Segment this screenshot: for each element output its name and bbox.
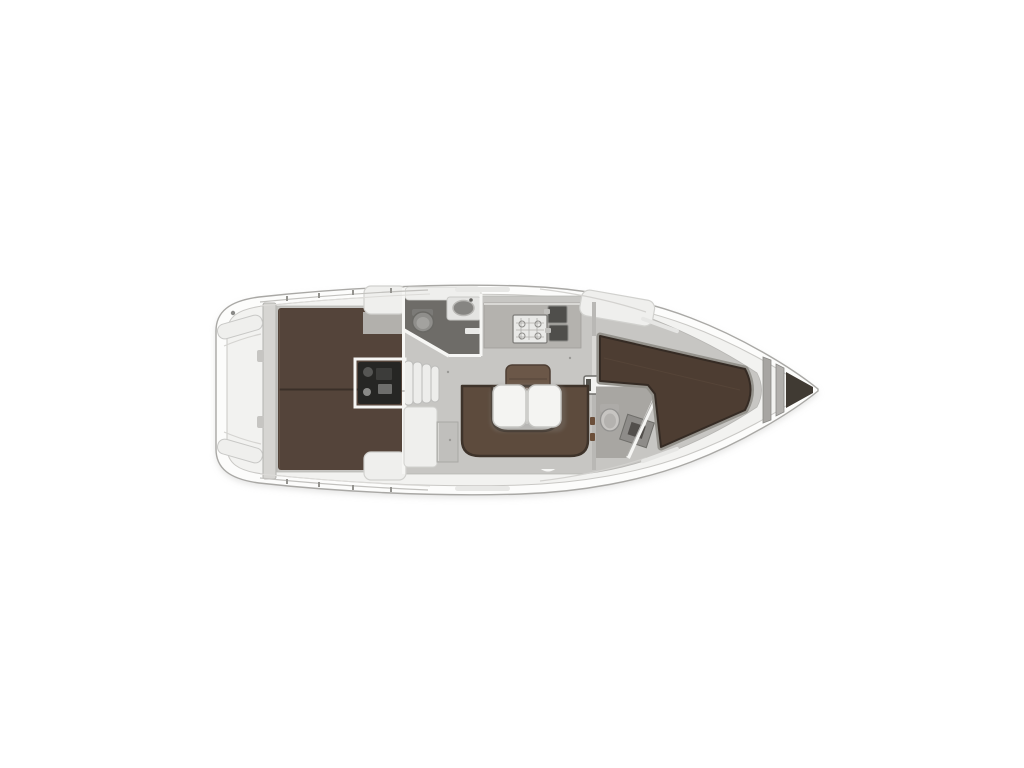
engine-manifold	[378, 384, 392, 394]
step-2	[413, 362, 422, 404]
floor-fitting-1	[447, 371, 449, 373]
door-hinge-2	[590, 433, 595, 441]
transom-cleat-bottom	[257, 416, 264, 428]
engine-head	[376, 368, 392, 380]
aft-cabin-wardrobe-top	[364, 286, 406, 314]
engine-filter	[363, 388, 371, 396]
galley-faucet-1	[544, 309, 550, 314]
bow-locker-bar-2	[776, 364, 784, 416]
step-1	[404, 361, 413, 405]
galley	[484, 303, 581, 348]
galley-faucet-2	[545, 328, 551, 333]
nav-cabinet	[404, 407, 437, 467]
folding-table-leaf-right	[528, 385, 561, 427]
floor-fitting-3	[449, 439, 451, 441]
hull-window-bottom	[455, 486, 510, 491]
aft-heads-toilet-lid	[417, 317, 430, 329]
bow-locker-bar-1	[763, 357, 771, 423]
stanchion-5	[286, 479, 288, 484]
engine-compartment	[355, 359, 405, 407]
step-4	[431, 366, 439, 402]
stanchion-4	[390, 288, 392, 293]
wardrobe-front-panel	[363, 312, 402, 334]
stanchion-7	[352, 485, 354, 490]
salon-partition	[437, 422, 458, 462]
deck-filler-cap	[231, 311, 235, 315]
engine-pulley	[363, 367, 373, 377]
hull-window-top	[455, 287, 510, 292]
aft-heads-faucet	[469, 298, 473, 302]
galley-stove	[513, 315, 547, 343]
folding-table-leaf-left	[493, 385, 526, 427]
yacht-floorplan-page	[0, 0, 1024, 768]
galley-sink-2	[549, 325, 568, 341]
aft-cabin-wardrobe-bottom	[364, 452, 406, 480]
stanchion-6	[318, 482, 320, 487]
galley-sink-1	[548, 306, 567, 323]
step-3	[422, 364, 431, 403]
transom-wall	[263, 303, 276, 479]
transom-cleat-top	[257, 350, 264, 362]
stanchion-1	[286, 296, 288, 301]
stanchion-8	[390, 487, 392, 492]
stanchion-3	[352, 290, 354, 295]
floor-fitting-2	[569, 357, 571, 359]
companionway-steps	[404, 361, 439, 405]
aft-heads-sink	[453, 301, 474, 316]
stanchion-2	[318, 293, 320, 298]
yacht-floorplan-drawing	[0, 0, 1024, 768]
forward-heads-toilet-lid	[604, 414, 616, 429]
door-hinge-1	[590, 417, 595, 425]
aft-heads-towel-rail	[465, 328, 480, 334]
